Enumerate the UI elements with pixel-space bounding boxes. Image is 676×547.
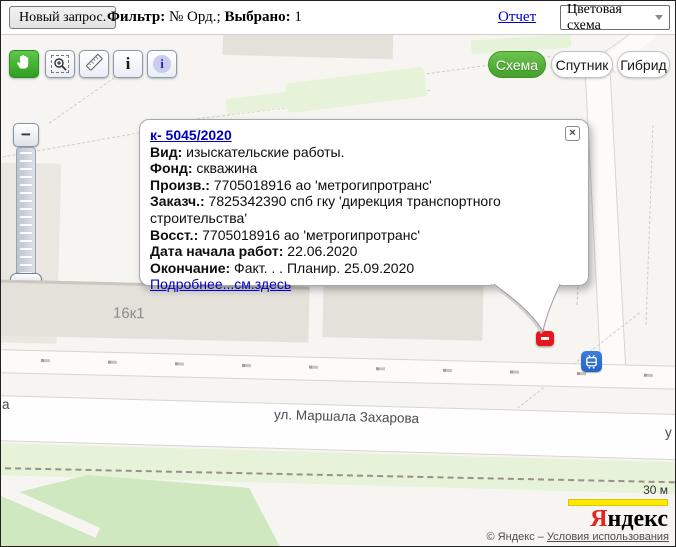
row-value: скважина xyxy=(193,160,258,176)
row-value: 7705018916 ао 'метрогипротранс' xyxy=(210,177,432,193)
app-window: Новый запрос. Фильтр: № Орд.; Выбрано: 1… xyxy=(0,0,676,547)
row-label: Произв.: xyxy=(150,177,210,193)
balloon-tail xyxy=(471,284,591,336)
color-scheme-select-value: Цветовая схема xyxy=(567,2,655,34)
area-zoom-tool-button[interactable] xyxy=(45,50,75,78)
yandex-logo[interactable]: Яндекс xyxy=(590,507,668,531)
measure-tool-button[interactable] xyxy=(79,50,109,78)
map-type-satellite-button[interactable]: Спутник xyxy=(551,51,613,78)
area-zoom-icon xyxy=(51,55,69,73)
copyright-line: © Яндекс – Условия использования xyxy=(487,531,669,543)
map-green-area xyxy=(285,67,428,114)
chevron-down-icon xyxy=(655,15,663,20)
scale-label: 30 м xyxy=(643,483,668,497)
info-icon: i xyxy=(126,54,131,74)
info-tool-button[interactable]: i xyxy=(113,50,143,78)
close-icon[interactable]: × xyxy=(565,126,580,141)
hand-icon xyxy=(15,52,34,76)
ruler-icon xyxy=(84,52,104,77)
report-link[interactable]: Отчет xyxy=(498,9,536,26)
details-link[interactable]: Подробнее...см.здесь xyxy=(150,276,291,293)
map-type-hybrid-button[interactable]: Гибрид xyxy=(617,51,670,78)
map-road xyxy=(1,349,675,390)
filter-label: Фильтр: xyxy=(107,9,165,25)
row-label: Восст.: xyxy=(150,227,198,243)
row-value: Факт. . . Планир. 25.09.2020 xyxy=(230,260,414,276)
row-label: Фонд: xyxy=(150,160,193,176)
balloon-row-proizv: Произв.: 7705018916 ао 'метрогипротранс' xyxy=(150,177,562,194)
order-link[interactable]: к- 5045/2020 xyxy=(150,127,232,144)
info-balloon: × к- 5045/2020 Вид: изыскательские работ… xyxy=(139,119,589,286)
selected-count: 1 xyxy=(291,9,302,25)
balloon-row-end-date: Окончание: Факт. . . Планир. 25.09.2020 xyxy=(150,260,562,277)
row-value: 7705018916 ао 'метрогипротранс' xyxy=(198,227,420,243)
yandex-logo-rest: ндекс xyxy=(607,506,668,532)
street-label-fragment-right: у xyxy=(665,425,672,440)
map-green-area xyxy=(225,91,296,115)
street-label-fragment-left: а xyxy=(2,397,10,412)
row-label: Дата начала работ: xyxy=(150,243,283,259)
row-value: изыскательские работы. xyxy=(182,144,344,160)
map-road xyxy=(585,75,627,388)
tram-stop-icon[interactable] xyxy=(581,351,602,372)
selected-label: Выбрано: xyxy=(224,9,290,25)
balloon-row-vosst: Восст.: 7705018916 ао 'метрогипротранс' xyxy=(150,227,562,244)
row-label: Заказч.: xyxy=(150,193,205,209)
row-label: Вид: xyxy=(150,144,182,160)
info-circle-icon: i xyxy=(153,55,171,73)
map-dashed-boundary xyxy=(49,71,123,123)
filter-value: № Орд.; xyxy=(165,9,224,25)
new-request-button[interactable]: Новый запрос. xyxy=(9,6,116,29)
row-label: Окончание: xyxy=(150,260,230,276)
zoom-out-button[interactable]: − xyxy=(13,123,39,147)
pan-tool-button[interactable] xyxy=(9,50,39,78)
scale-bar xyxy=(568,499,668,506)
map-type-scheme-button[interactable]: Схема xyxy=(488,51,546,78)
map-canvas[interactable]: 16к1 ул. Маршала Захарова а у xyxy=(1,35,675,546)
balloon-row-fond: Фонд: скважина xyxy=(150,160,562,177)
terms-of-use-link[interactable]: Условия использования xyxy=(547,531,669,543)
map-building xyxy=(223,35,394,59)
building-label: 16к1 xyxy=(113,305,145,323)
map-dashed-boundary xyxy=(646,125,654,325)
balloon-row-vid: Вид: изыскательские работы. xyxy=(150,144,562,161)
balloon-row-zakazch: Заказч.: 7825342390 спб гку 'дирекция тр… xyxy=(150,193,562,226)
balloon-row-start-date: Дата начала работ: 22.06.2020 xyxy=(150,243,562,260)
row-value: 22.06.2020 xyxy=(283,243,357,259)
filter-status-text: Фильтр: № Орд.; Выбрано: 1 xyxy=(107,9,302,26)
yandex-logo-letter: Я xyxy=(590,506,607,532)
info-alt-tool-button[interactable]: i xyxy=(147,50,177,78)
color-scheme-select[interactable]: Цветовая схема xyxy=(560,5,670,30)
copyright-text: © Яндекс – xyxy=(487,531,547,543)
top-toolbar: Новый запрос. Фильтр: № Орд.; Выбрано: 1… xyxy=(1,1,675,35)
